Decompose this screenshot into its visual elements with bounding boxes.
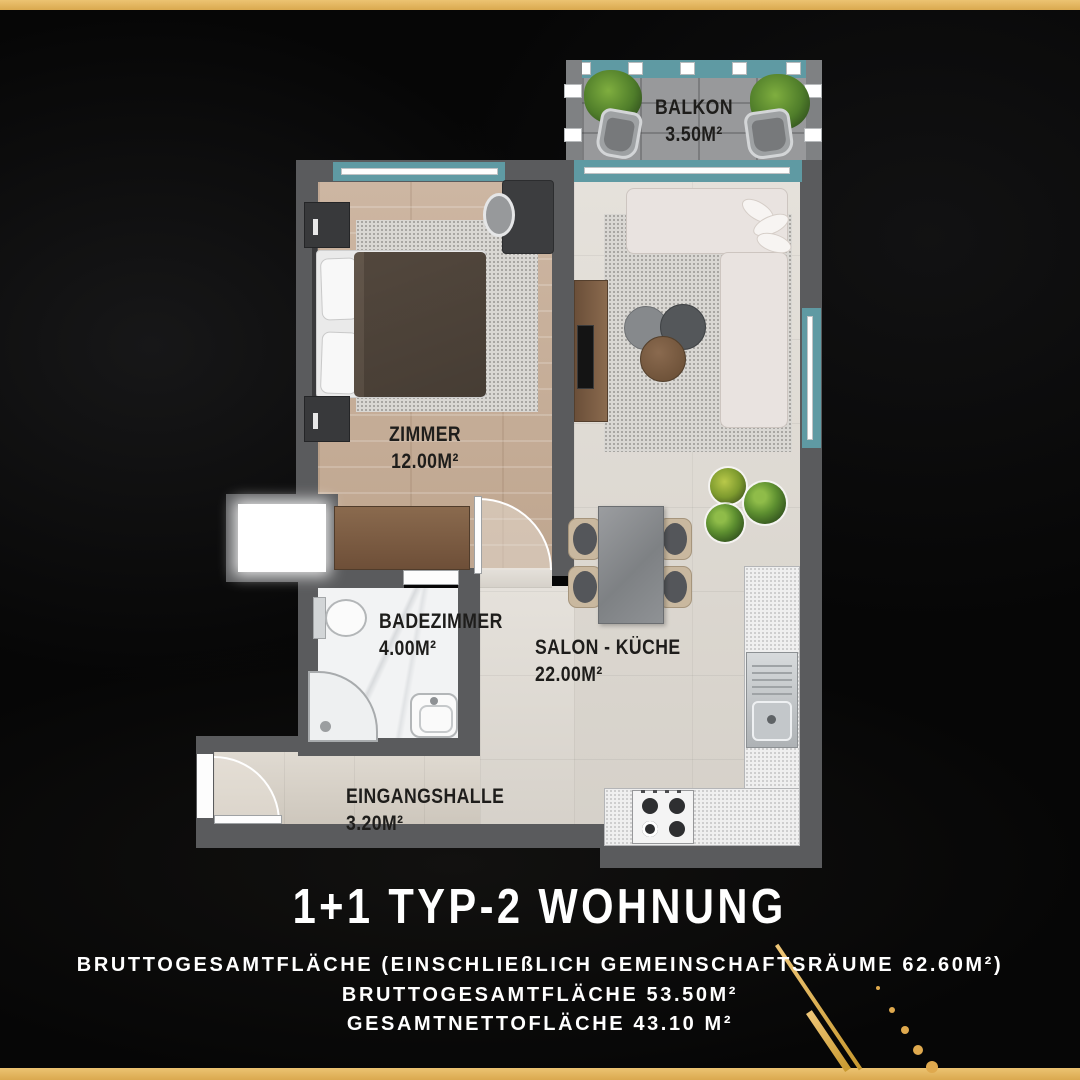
nightstand xyxy=(304,202,350,248)
gold-dot xyxy=(926,1061,938,1073)
dining-table xyxy=(598,506,664,624)
room-label-zimmer: ZIMMER 12.00M² xyxy=(340,421,510,476)
railing-post xyxy=(564,84,582,98)
area-summary: BRUTTOGESAMTFLÄCHE (EINSCHLIEßLICH GEMEI… xyxy=(0,951,1080,1040)
balcony-door-frame xyxy=(584,167,790,174)
room-area: 22.00M² xyxy=(535,661,681,688)
bedroom-door-leaf xyxy=(474,496,482,574)
railing-post xyxy=(786,62,801,75)
room-name: ZIMMER xyxy=(354,421,497,448)
room-area: 4.00M² xyxy=(379,635,503,662)
bedroom-window-frame xyxy=(341,168,498,175)
wardrobe xyxy=(334,506,470,570)
poster-canvas: BALKON 3.50M² ZIMMER 12.00M² BADEZIMMER … xyxy=(0,0,1080,1080)
shaft-window xyxy=(238,504,326,572)
kitchen-sink-icon xyxy=(746,652,798,748)
room-area: 3.50M² xyxy=(600,121,788,148)
wall-bedroom-salon-divider xyxy=(552,160,574,576)
coffee-table-icon xyxy=(640,336,686,382)
balcony-side-left xyxy=(566,60,582,164)
stove-icon xyxy=(632,790,694,844)
area-line-brutto-gemeinschaft: BRUTTOGESAMTFLÄCHE (EINSCHLIEßLICH GEMEI… xyxy=(0,951,1080,981)
room-name: BALKON xyxy=(600,94,788,121)
dining-chair-icon xyxy=(568,518,602,560)
plant-icon xyxy=(744,482,786,524)
room-name: EINGANGSHALLE xyxy=(346,783,504,810)
gold-dot xyxy=(913,1045,923,1055)
bathroom-door xyxy=(403,570,459,585)
room-label-badezimmer: BADEZIMMER 4.00M² xyxy=(379,608,526,663)
room-name: BADEZIMMER xyxy=(379,608,503,635)
gold-top-bar xyxy=(0,0,1080,10)
gold-bottom-bar xyxy=(0,1068,1080,1080)
bedroom-door-threshold xyxy=(480,568,552,588)
toilet-icon xyxy=(325,599,367,637)
railing-post xyxy=(628,62,643,75)
desk-chair-icon xyxy=(483,193,515,237)
balcony-side-right xyxy=(806,60,822,164)
area-line-netto: GESAMTNETTOFLÄCHE 43.10 M² xyxy=(0,1010,1080,1040)
plan-title-text: 1+1 TYP-2 WOHNUNG xyxy=(293,879,787,935)
railing-post xyxy=(732,62,747,75)
tv-unit xyxy=(574,280,608,422)
dining-chair-icon xyxy=(568,566,602,608)
wall-right xyxy=(800,160,822,868)
plant-icon xyxy=(710,468,746,504)
salon-window-frame xyxy=(807,316,813,440)
sofa-vertical xyxy=(720,252,788,428)
railing-post xyxy=(680,62,695,75)
room-area: 12.00M² xyxy=(354,448,497,475)
bed-blanket xyxy=(354,252,486,397)
room-area: 3.20M² xyxy=(346,810,504,837)
room-label-eingangshalle: EINGANGSHALLE 3.20M² xyxy=(346,783,535,838)
area-line-brutto: BRUTTOGESAMTFLÄCHE 53.50M² xyxy=(0,981,1080,1011)
railing-post xyxy=(564,128,582,142)
wall-bottom-right xyxy=(600,844,822,868)
room-label-salon: SALON - KÜCHE 22.00M² xyxy=(535,634,708,689)
room-label-balkon: BALKON 3.50M² xyxy=(582,94,806,149)
entrance-door-opening xyxy=(197,754,213,818)
railing-post xyxy=(804,128,822,142)
entrance-door-leaf xyxy=(214,815,282,824)
bathroom-sink-icon xyxy=(410,693,458,738)
plan-title: 1+1 TYP-2 WOHNUNG xyxy=(0,879,1080,935)
plant-icon xyxy=(706,504,744,542)
room-name: SALON - KÜCHE xyxy=(535,634,681,661)
